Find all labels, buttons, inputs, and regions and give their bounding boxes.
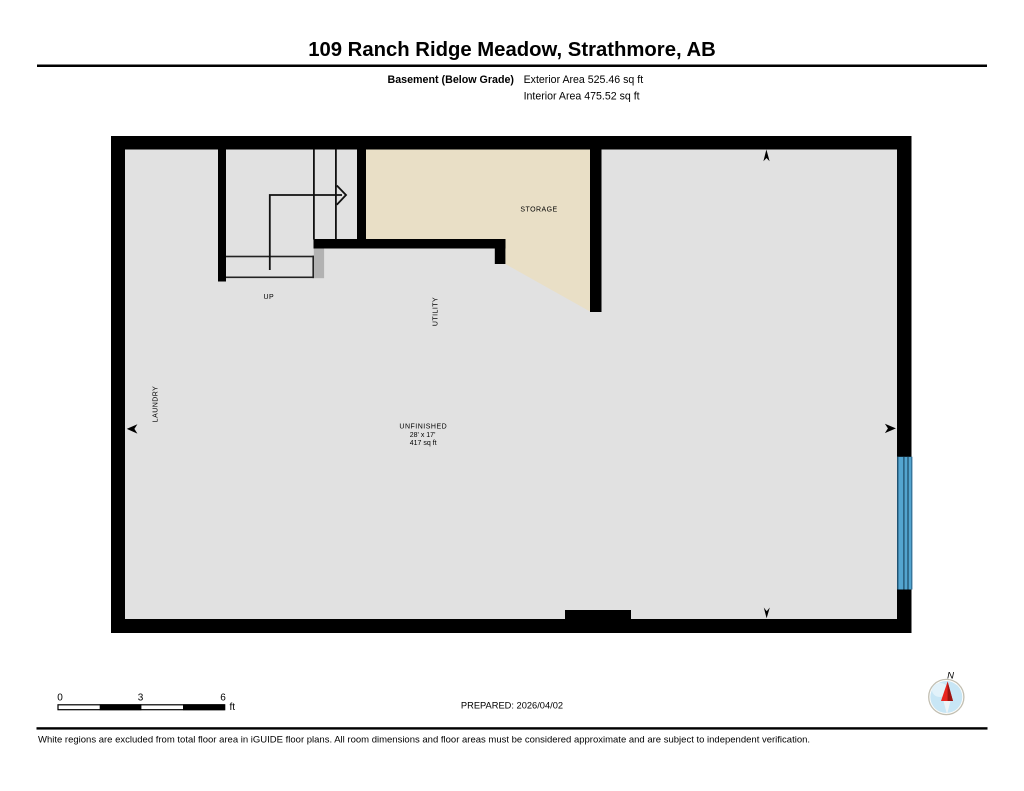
svg-text:0: 0 xyxy=(57,693,63,704)
svg-text:Exterior Area 525.46 sq ft: Exterior Area 525.46 sq ft xyxy=(524,74,644,86)
svg-text:White regions are excluded fro: White regions are excluded from total fl… xyxy=(38,734,810,745)
svg-text:STORAGE: STORAGE xyxy=(520,207,557,214)
svg-text:UTILITY: UTILITY xyxy=(433,297,440,326)
svg-text:UP: UP xyxy=(263,294,274,301)
svg-text:PREPARED: 2026/04/02: PREPARED: 2026/04/02 xyxy=(461,700,563,710)
svg-text:UNFINISHED: UNFINISHED xyxy=(399,424,447,431)
svg-text:ft: ft xyxy=(230,702,236,713)
svg-text:Interior Area 475.52 sq ft: Interior Area 475.52 sq ft xyxy=(524,90,640,102)
svg-text:N: N xyxy=(947,671,954,682)
svg-text:LAUNDRY: LAUNDRY xyxy=(153,386,160,422)
svg-text:3: 3 xyxy=(138,693,144,704)
svg-text:417 sq ft: 417 sq ft xyxy=(410,440,437,447)
svg-text:Basement (Below Grade): Basement (Below Grade) xyxy=(387,74,514,86)
svg-text:6: 6 xyxy=(220,693,226,704)
svg-text:28' x 17': 28' x 17' xyxy=(410,432,436,439)
svg-text:109 Ranch Ridge Meadow, Strath: 109 Ranch Ridge Meadow, Strathmore, AB xyxy=(308,39,716,61)
